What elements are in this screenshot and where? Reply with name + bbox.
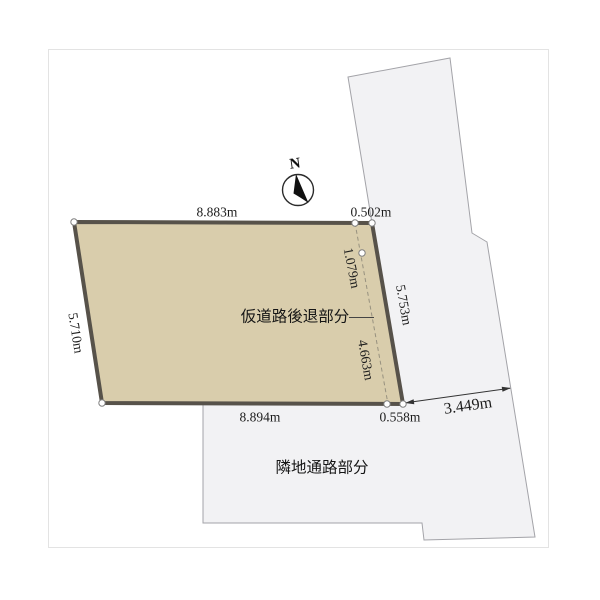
survey-point-top-inner	[352, 220, 358, 226]
dim-bottom-edge: 8.894m	[240, 410, 281, 425]
survey-point-top-left	[71, 219, 77, 225]
plot-survey-page: N 8.883m 0.502m 5.710m 5.753m 1.079m 4.6…	[0, 0, 600, 600]
dim-top-right-segment: 0.502m	[351, 205, 392, 220]
dim-top-edge: 8.883m	[197, 205, 238, 220]
survey-point-bottom-inner	[384, 401, 390, 407]
setback-area-label: 仮道路後退部分	[241, 308, 350, 326]
survey-point-bottom-right	[400, 401, 406, 407]
survey-point-bottom-left	[99, 400, 105, 406]
neighbor-passage-label: 隣地通路部分	[275, 459, 368, 477]
survey-point-setback-mid	[359, 250, 365, 256]
plot-survey-diagram: N 8.883m 0.502m 5.710m 5.753m 1.079m 4.6…	[0, 0, 600, 600]
survey-point-top-right	[369, 220, 375, 226]
dim-bottom-right-segment: 0.558m	[380, 410, 421, 425]
